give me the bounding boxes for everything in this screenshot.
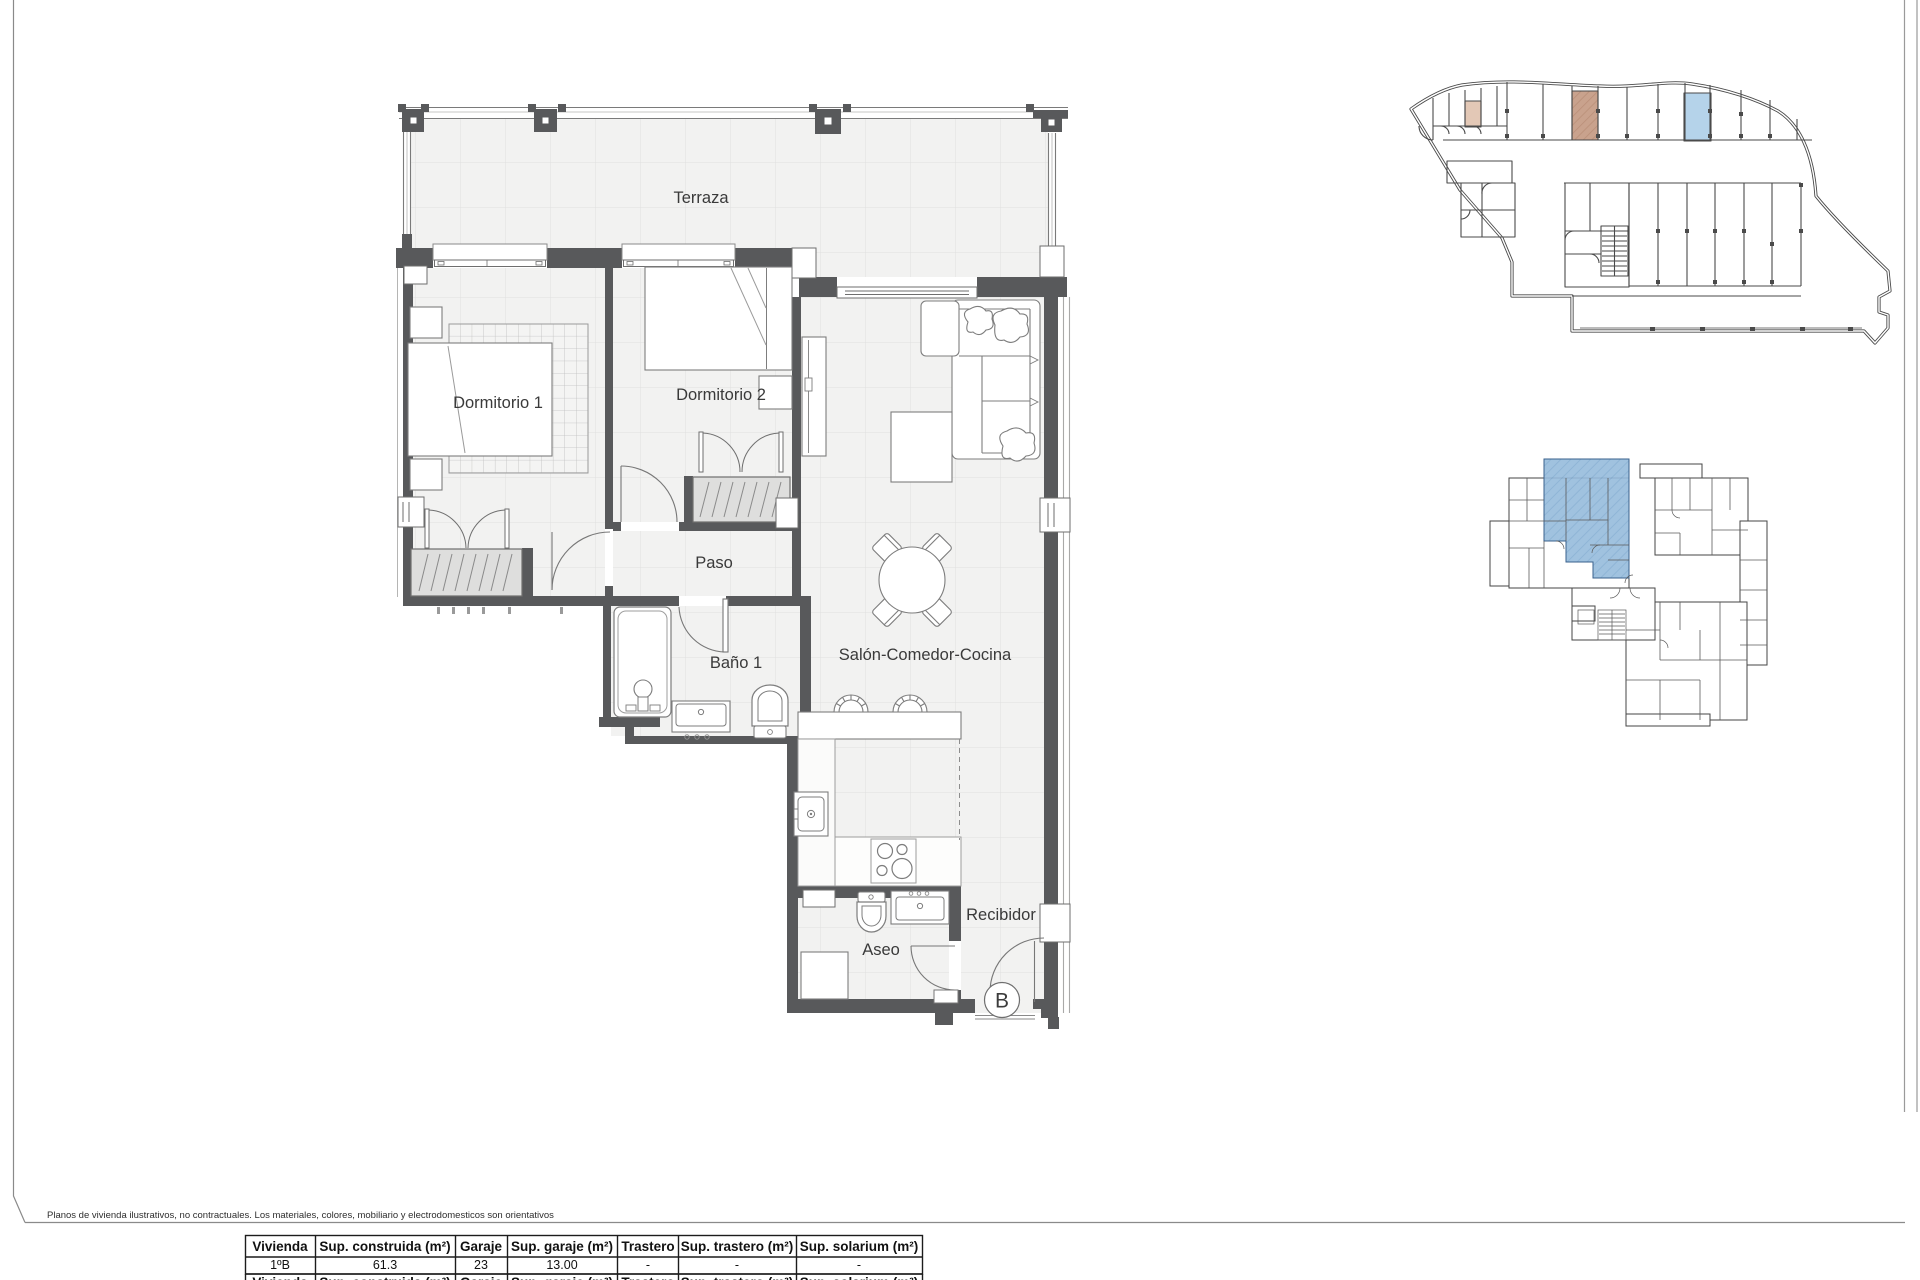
svg-text:1ºB: 1ºB [270,1258,290,1272]
svg-text:Baño 1: Baño 1 [710,654,762,672]
svg-text:Dormitorio 1: Dormitorio 1 [453,394,543,412]
svg-text:-: - [857,1258,861,1272]
svg-text:-: - [646,1258,650,1272]
svg-text:Paso: Paso [695,554,733,572]
svg-text:61.3: 61.3 [373,1258,397,1272]
svg-text:13.00: 13.00 [546,1258,577,1272]
svg-text:Aseo: Aseo [862,941,900,959]
svg-text:23: 23 [474,1258,488,1272]
svg-text:Sup. trastero (m²): Sup. trastero (m²) [681,1275,794,1280]
svg-text:Sup. construida (m²): Sup. construida (m²) [319,1275,450,1280]
svg-text:Garaje: Garaje [460,1275,503,1280]
svg-text:Planos de vivienda ilustrativo: Planos de vivienda ilustrativos, no cont… [47,1210,554,1221]
svg-text:Trastero: Trastero [621,1275,674,1280]
svg-text:Sup. solarium (m²): Sup. solarium (m²) [800,1239,919,1254]
svg-text:Salón-Comedor-Cocina: Salón-Comedor-Cocina [839,646,1012,664]
svg-text:Sup. garaje (m²): Sup. garaje (m²) [511,1275,613,1280]
svg-text:Sup. solarium (m²): Sup. solarium (m²) [800,1275,919,1280]
svg-text:Terraza: Terraza [673,189,729,207]
svg-text:Trastero: Trastero [621,1239,674,1254]
svg-text:Garaje: Garaje [460,1239,503,1254]
svg-text:Sup. trastero (m²): Sup. trastero (m²) [681,1239,794,1254]
svg-text:Sup. construida (m²): Sup. construida (m²) [319,1239,450,1254]
svg-text:Vivienda: Vivienda [252,1239,308,1254]
svg-text:-: - [735,1258,739,1272]
svg-text:B: B [995,990,1009,1013]
svg-text:Sup. garaje (m²): Sup. garaje (m²) [511,1239,613,1254]
svg-text:Vivienda: Vivienda [252,1275,308,1280]
svg-text:Dormitorio 2: Dormitorio 2 [676,386,766,404]
svg-text:Recibidor: Recibidor [966,906,1036,924]
